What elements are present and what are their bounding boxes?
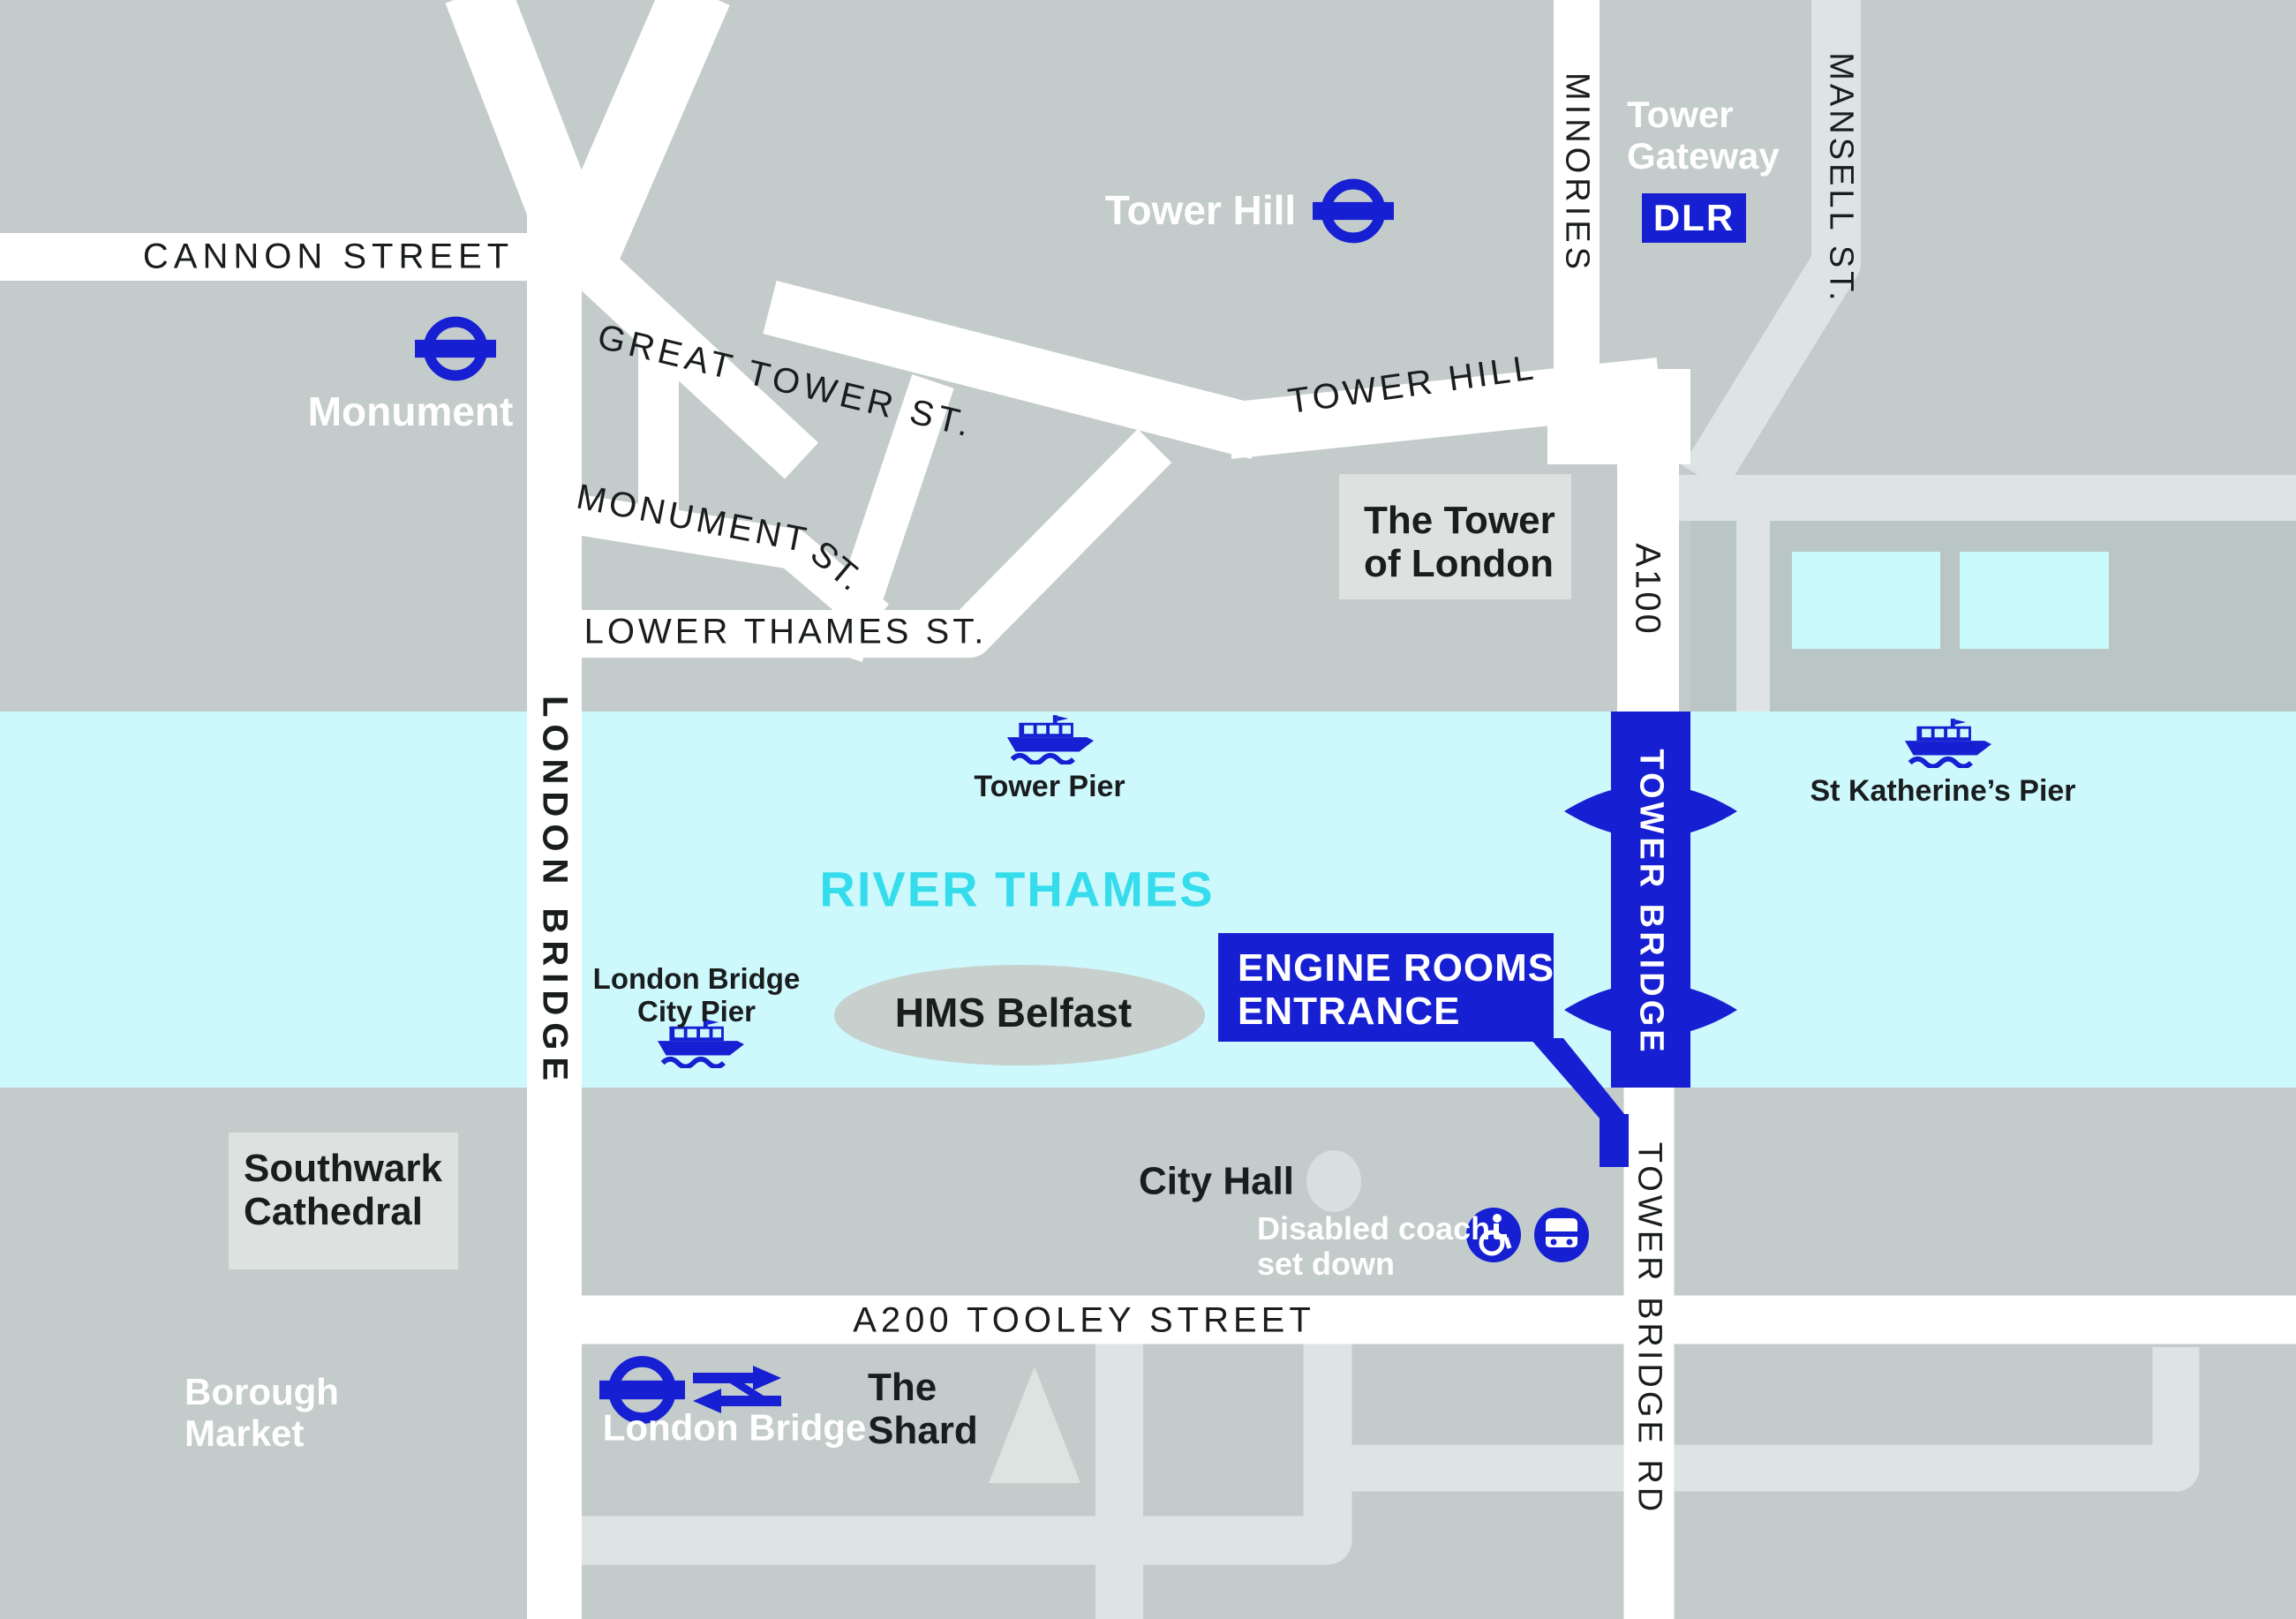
shard-line1: The <box>868 1366 978 1409</box>
hms-belfast-label: HMS Belfast <box>895 990 1132 1036</box>
borough-line1: Borough <box>184 1371 339 1412</box>
lb-city-pier-line1: London Bridge <box>593 963 801 996</box>
southwark-line2: Cathedral <box>244 1190 442 1233</box>
river-thames-label: RIVER THAMES <box>819 862 1214 918</box>
st-katherines-pier-ferry-icon <box>1903 719 1991 768</box>
southwark-line1: Southwark <box>244 1147 442 1190</box>
callout-line2: ENTRANCE <box>1238 990 1555 1033</box>
callout-line1: ENGINE ROOMS <box>1238 946 1555 990</box>
street-label-minories: MINORIES <box>1558 72 1596 274</box>
street-label-lower-thames: LOWER THAMES ST. <box>584 613 988 652</box>
tower-of-london-label: The Tower of London <box>1364 499 1555 586</box>
station-label-monument: Monument <box>308 389 514 435</box>
street-label-a100: A100 <box>1628 543 1667 636</box>
road-south-minor-east <box>1328 1347 2176 1468</box>
engine-rooms-callout-label: ENGINE ROOMS ENTRANCE <box>1238 946 1555 1034</box>
tower-of-london-line1: The Tower <box>1364 499 1555 542</box>
shard-label: The Shard <box>868 1366 978 1453</box>
street-label-tower-bridge: TOWER BRIDGE <box>1632 749 1670 1055</box>
pier-label-lb-city-pier: London Bridge City Pier <box>593 963 801 1028</box>
borough-market-label: Borough Market <box>184 1371 339 1454</box>
dock-basin-east <box>1960 552 2109 649</box>
lb-city-pier-line2: City Pier <box>593 996 801 1028</box>
pier-label-tower-pier: Tower Pier <box>974 770 1125 803</box>
tower-gateway-line2: Gateway <box>1627 135 1780 177</box>
entrance-marker <box>1600 1114 1629 1167</box>
tower-pier-ferry-icon <box>1005 715 1094 764</box>
tower-of-london-line2: of London <box>1364 542 1555 585</box>
disabled-coach-note: Disabled coach set down <box>1257 1211 1490 1283</box>
tower-gateway-line1: Tower <box>1627 94 1780 135</box>
station-label-tower-hill: Tower Hill <box>1105 188 1296 234</box>
borough-line2: Market <box>184 1412 339 1454</box>
station-label-tower-gateway: Tower Gateway <box>1627 94 1780 177</box>
street-label-tower-bridge-rd: TOWER BRIDGE RD <box>1630 1142 1668 1515</box>
city-hall-shape <box>1306 1150 1361 1212</box>
pier-label-st-katherines: St Katherine’s Pier <box>1810 774 2075 808</box>
disabled-note-line2: set down <box>1257 1246 1490 1282</box>
station-label-london-bridge: London Bridge <box>603 1406 867 1448</box>
monument-roundel-icon <box>415 308 496 389</box>
southwark-cathedral-label: Southwark Cathedral <box>244 1147 442 1234</box>
tower-bridge-area-map: DLR CANNON STREET GREAT TOWER ST. TOWER … <box>0 0 2296 1619</box>
street-label-london-bridge: LONDON BRIDGE <box>535 696 575 1088</box>
bus-icon <box>1532 1206 1591 1264</box>
disabled-note-line1: Disabled coach <box>1257 1211 1490 1246</box>
tower-hill-roundel-icon <box>1313 170 1394 252</box>
dock-basin-west <box>1792 552 1940 649</box>
city-hall-label: City Hall <box>1139 1159 1294 1202</box>
street-label-cannon: CANNON STREET <box>143 237 514 277</box>
shard-line2: Shard <box>868 1409 978 1452</box>
street-label-tooley: A200 TOOLEY STREET <box>853 1301 1315 1341</box>
street-label-mansell: MANSELL ST. <box>1822 52 1860 304</box>
shard-triangle <box>989 1367 1080 1483</box>
road-king-william <box>477 0 572 238</box>
road-gracechurch <box>583 0 697 256</box>
dlr-badge: DLR <box>1642 193 1746 243</box>
